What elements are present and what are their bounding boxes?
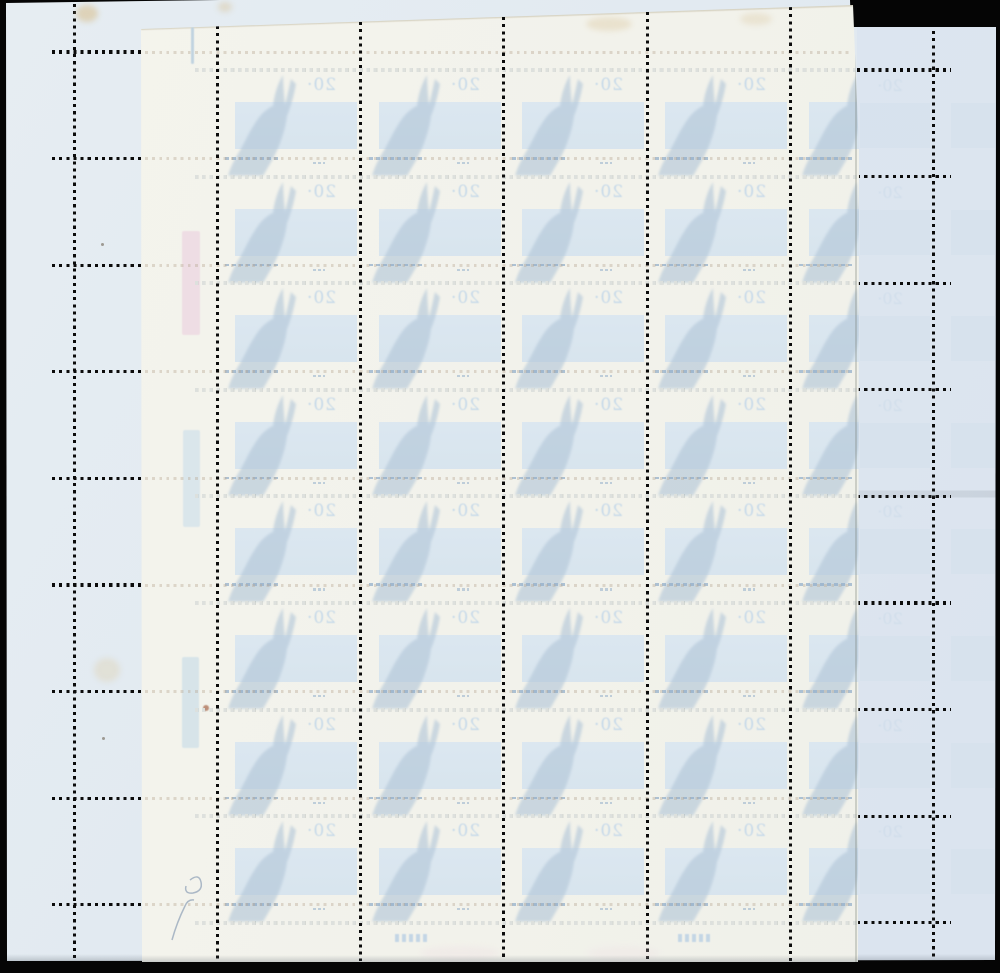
ghost-stamp-band [951, 103, 996, 148]
stamp-corner-marks [743, 162, 755, 164]
stamp-denomination: 20· [301, 608, 341, 628]
stamp-corner-marks [600, 802, 612, 804]
perforation-row-stub [857, 815, 951, 818]
ghost-stamp-denomination: 20· [872, 822, 908, 841]
stamp-denomination: 20· [445, 501, 485, 521]
stamp-corner-marks [457, 269, 469, 271]
paper-speck [101, 243, 104, 246]
stamp-cell: 20· [361, 70, 504, 177]
stamp-cell: 20· [647, 496, 790, 603]
stamp-corner-marks [457, 802, 469, 804]
stamp-corner-marks [600, 482, 612, 484]
stamp-corner-marks [743, 908, 755, 910]
perforation-row-stub [857, 175, 951, 178]
stamp-corner-marks [313, 695, 325, 697]
stamp-cell: 20· [217, 816, 360, 923]
imprint-mark-group [395, 934, 429, 942]
punched-perforation-row [195, 601, 857, 605]
ghost-stamp-band [951, 743, 996, 788]
stamp-corner-marks [457, 482, 469, 484]
stamp-denomination: 20· [731, 821, 771, 841]
stamp-cell: 20· [361, 603, 504, 710]
ghost-perforation-row [145, 797, 850, 800]
perforation-row-stub [857, 601, 951, 604]
punched-perforation-row [195, 68, 857, 72]
stamp-corner-marks [457, 588, 469, 590]
perforation-column [502, 17, 505, 961]
perforation-column [359, 22, 362, 961]
perforation-row-stub [52, 903, 142, 906]
ghost-perforation-row [145, 690, 850, 693]
stamp-corner-marks [457, 162, 469, 164]
stamp-cell: 20· [647, 816, 790, 923]
stamp-corner-marks [313, 802, 325, 804]
stamp-denomination: 20· [731, 715, 771, 735]
stamp-corner-marks [743, 802, 755, 804]
pencil-annotation [158, 868, 218, 953]
stamp-cell: 20· [647, 710, 790, 817]
perforation-row-stub [857, 282, 951, 285]
stamp-cell: 20· [217, 283, 360, 390]
stain [740, 13, 772, 25]
margin-color-bar [182, 657, 199, 748]
paper-speck [102, 737, 105, 740]
stamp-denomination: 20· [301, 182, 341, 202]
stamp-cell: 20· [647, 603, 790, 710]
stamp-corner-marks [743, 375, 755, 377]
ghost-stamp-band [951, 636, 996, 681]
stamp-cell: 20· [504, 177, 647, 284]
stamp-cell: 20· [504, 710, 647, 817]
perforation-row-stub [52, 583, 142, 586]
stamp-cell: 20· [361, 177, 504, 284]
ghost-stamp-denomination: 20· [872, 396, 908, 415]
stamp-cell: 20· [217, 177, 360, 284]
stamp-denomination: 20· [301, 715, 341, 735]
stamp-denomination: 20· [588, 715, 628, 735]
ghost-stamp-band [860, 529, 930, 574]
stamp-corner-marks [743, 482, 755, 484]
punched-perforation-row [195, 388, 857, 392]
stamp-denomination: 20· [588, 75, 628, 95]
stamp-denomination: 20· [588, 821, 628, 841]
stamp-denomination: 20· [731, 608, 771, 628]
stamp-cell: 20· [504, 70, 647, 177]
punched-perforation-row [195, 814, 857, 818]
stain [218, 2, 232, 12]
punched-perforation-row [195, 494, 857, 498]
stamp-denomination: 20· [301, 75, 341, 95]
ghost-stamp-band [951, 849, 996, 894]
stamp-corner-marks [600, 695, 612, 697]
stamp-cell: 20· [361, 710, 504, 817]
perforation-row-stub [52, 50, 142, 53]
stamp-cell: 20· [217, 496, 360, 603]
ghost-stamp-band [951, 210, 996, 255]
ghost-stamp-denomination: 20· [872, 183, 908, 202]
stamp-cell: 20· [217, 390, 360, 497]
stamp-corner-marks [457, 908, 469, 910]
stamp-cell: 20· [217, 603, 360, 710]
stamp-denomination: 20· [731, 182, 771, 202]
ghost-stamp-band [860, 210, 930, 255]
stamp-cell: 20· [361, 816, 504, 923]
ghost-stamp-denomination: 20· [872, 716, 908, 735]
imprint-mark-group [678, 934, 712, 942]
ghost-perforation-row [145, 903, 850, 906]
stamp-denomination: 20· [445, 715, 485, 735]
stamp-cell: 20· [504, 816, 647, 923]
stamp-cell: 20· [217, 70, 360, 177]
stamp-corner-marks [313, 588, 325, 590]
sheet-right-edge-line [855, 5, 857, 962]
stain [76, 5, 98, 22]
stamp-denomination: 20· [445, 182, 485, 202]
punched-perforation-row [195, 708, 857, 712]
ghost-stamp-band [860, 849, 930, 894]
ghost-stamp-band [951, 423, 996, 468]
ghost-stamp-band [860, 103, 930, 148]
stamp-cell: 20· [504, 603, 647, 710]
stamp-corner-marks [313, 162, 325, 164]
stamp-denomination: 20· [588, 501, 628, 521]
stamp-sheet-scan: 20·20·20·20·20·20·20·20· 20·20·20·20·20·… [0, 0, 1000, 973]
stamp-denomination: 20· [445, 608, 485, 628]
stamp-corner-marks [313, 908, 325, 910]
stamp-corner-marks [600, 269, 612, 271]
punched-perforation-row [195, 175, 857, 179]
perforation-row-stub [52, 264, 142, 267]
stamp-denomination: 20· [301, 501, 341, 521]
stamp-corner-marks [313, 269, 325, 271]
stamp-corner-marks [600, 162, 612, 164]
stamp-cell: 20· [217, 710, 360, 817]
ghost-stamp-band [951, 529, 996, 574]
ghost-stamp-band [860, 636, 930, 681]
sheet-bottom-shadow [142, 955, 858, 962]
ghost-stamp-band [860, 423, 930, 468]
ghost-perforation-row [145, 264, 850, 267]
stamp-denomination: 20· [445, 75, 485, 95]
ghost-perforation-row [145, 51, 850, 54]
stamp-cell: 20· [504, 390, 647, 497]
perforation-row-stub [857, 388, 951, 391]
perforation-row-stub [52, 477, 142, 480]
stamp-corner-marks [743, 269, 755, 271]
stamp-denomination: 20· [588, 608, 628, 628]
perforation-row-stub [857, 921, 951, 924]
stamp-denomination: 20· [731, 395, 771, 415]
stamp-corner-marks [743, 695, 755, 697]
stamp-denomination: 20· [588, 288, 628, 308]
ghost-stamp-denomination: 20· [872, 609, 908, 628]
stamp-denomination: 20· [301, 395, 341, 415]
perforation-column [646, 12, 649, 961]
perforation-column [216, 26, 219, 961]
stamp-denomination: 20· [731, 75, 771, 95]
perforation-row-stub [857, 708, 951, 711]
stamp-cell: 20· [361, 283, 504, 390]
ghost-perforation-row [145, 584, 850, 587]
stamp-cell: 20· [504, 496, 647, 603]
perforation-row-stub [52, 157, 142, 160]
ghost-stamp-denomination: 20· [872, 76, 908, 95]
stamp-cell: 20· [504, 283, 647, 390]
perforation-row-stub [52, 370, 142, 373]
punched-perforation-row [195, 921, 857, 925]
perforation-row-stub [52, 690, 142, 693]
stamp-corner-marks [743, 588, 755, 590]
stamp-corner-marks [600, 588, 612, 590]
stamp-denomination: 20· [445, 395, 485, 415]
ghost-stamp-band [860, 743, 930, 788]
ghost-stamp-band [860, 316, 930, 361]
stamp-corner-marks [600, 908, 612, 910]
ghost-stamp-band [951, 316, 996, 361]
stamp-cell: 20· [647, 283, 790, 390]
stamp-cell: 20· [647, 390, 790, 497]
stain [586, 17, 632, 31]
stamp-denomination: 20· [731, 288, 771, 308]
ghost-stamp-denomination: 20· [872, 502, 908, 521]
stamp-cell: 20· [361, 390, 504, 497]
stamp-denomination: 20· [731, 501, 771, 521]
stamp-corner-marks [313, 482, 325, 484]
ghost-perforation-row [145, 477, 850, 480]
perforation-row-stub [857, 68, 951, 71]
perforation-column [73, 4, 76, 961]
ghost-perforation-row [145, 370, 850, 373]
stain [94, 658, 120, 682]
perforation-row-stub [52, 797, 142, 800]
perforation-column [789, 7, 792, 961]
stamp-denomination: 20· [301, 821, 341, 841]
stamp-corner-marks [600, 375, 612, 377]
stamp-cell: 20· [361, 496, 504, 603]
stamp-denomination: 20· [588, 182, 628, 202]
stamp-cell: 20· [647, 177, 790, 284]
punched-perforation-row [195, 281, 857, 285]
stamp-corner-marks [457, 375, 469, 377]
top-sheet: 20·20·20·20·20·20·20·20·20·20·20·20·20·2… [0, 0, 1000, 973]
stamp-denomination: 20· [445, 288, 485, 308]
ghost-perforation-row [145, 157, 850, 160]
register-dash [191, 27, 194, 64]
stamp-denomination: 20· [588, 395, 628, 415]
stamp-denomination: 20· [301, 288, 341, 308]
stamp-denomination: 20· [445, 821, 485, 841]
ghost-stamp-denomination: 20· [872, 289, 908, 308]
stamp-cell: 20· [647, 70, 790, 177]
stamp-corner-marks [457, 695, 469, 697]
stamp-corner-marks [313, 375, 325, 377]
